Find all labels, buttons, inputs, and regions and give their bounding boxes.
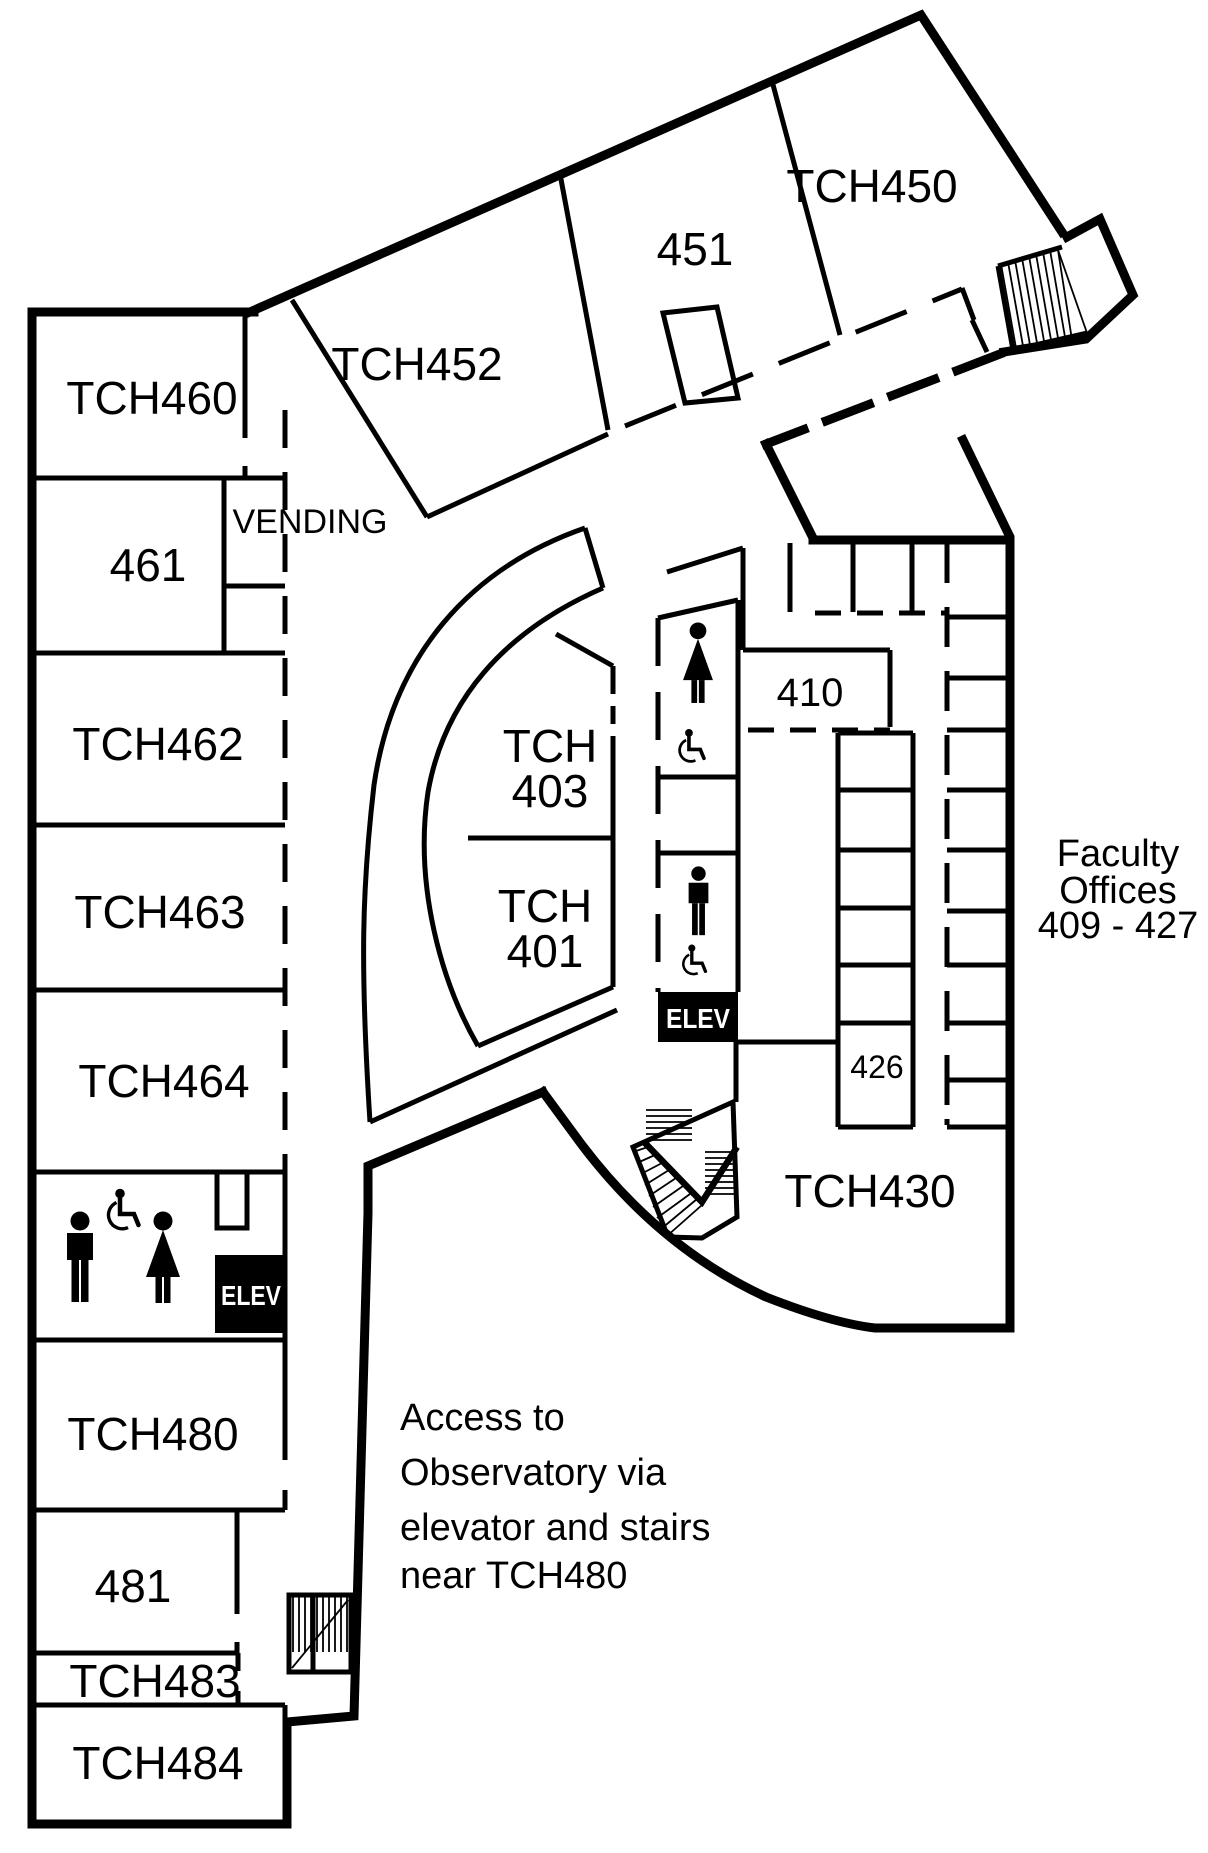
room-label-tch403-line2: 403 [512,765,589,817]
tch401-bottom-wall [478,987,613,1046]
accessible-icon [683,945,705,975]
women-restroom-icon [146,1212,180,1304]
room-label-tch460: TCH460 [66,372,237,424]
stairs-hatching-top [1001,250,1087,348]
room-label-tch463: TCH463 [74,886,245,938]
lower-corridor-wall [370,1010,617,1122]
room-label-tch401-line2: 401 [507,925,584,977]
room-label-451: 451 [657,223,734,275]
room-label-410: 410 [777,671,844,715]
elevator-lobby-walls [736,1042,838,1102]
faculty-offices-line3: 409 - 427 [1038,905,1199,947]
elevator-label: ELEV [666,1003,730,1034]
stair-lobby-walls [962,288,987,352]
tch452-end-wall [292,300,427,517]
room-label-tch450: TCH450 [786,160,957,212]
restroom-duct-notch [217,1172,247,1228]
room-label-tch464: TCH464 [78,1055,249,1107]
room-label-tch430: TCH430 [784,1165,955,1217]
faculty-offices-line1: Faculty [1057,833,1179,875]
observatory-note-line2: Observatory via [400,1452,667,1494]
center-women-restroom-icons [680,622,713,761]
bottom-left-stairs [289,1595,351,1672]
room-label-tch484: TCH484 [72,1737,243,1789]
top-right-stairs [998,247,1087,350]
top-corridor-wall-solid [427,434,608,517]
vending-label: VENDING [233,503,388,541]
center-men-restroom-icons [683,866,708,974]
tch403-top-wall [556,634,613,666]
room-label-tch452: TCH452 [331,338,502,390]
elevator-label: ELEV [221,1280,281,1311]
left-elevator: ELEV [215,1255,287,1333]
observatory-note-line4: near TCH480 [400,1555,627,1597]
restroom-column-top-wall [658,600,738,618]
left-restroom-icons [67,1189,180,1303]
exterior-notch-dashed-wall [766,354,1000,444]
accessible-icon [108,1189,138,1229]
top-stair-enclosure-outer-wall [1004,219,1133,352]
observatory-note-line3: elevator and stairs [400,1507,711,1549]
room451-alcove [663,307,738,403]
restroom-column-dividers [658,777,738,853]
arc-cap-wall [585,528,603,588]
wall-452-451 [560,174,608,430]
room-label-426: 426 [850,1049,903,1085]
room-label-tch483: TCH483 [69,1655,240,1707]
faculty-offices-note: Faculty Offices 409 - 427 [1038,833,1199,947]
men-restroom-icon [689,866,709,935]
top-row-office-dividers [790,543,912,612]
inner-arc-wall [424,588,603,1046]
observatory-note-line1: Access to [400,1397,565,1439]
floor-plan-canvas: ELEV ELEV TCH460 461 TCH462 TCH463 TCH46… [0,0,1208,1853]
center-elevator: ELEV [658,992,738,1042]
room-label-tch462: TCH462 [72,718,243,770]
top-wing-interior-walls [292,81,987,517]
room-label-tch480: TCH480 [67,1408,238,1460]
stairs-hatching-bottom [292,1597,348,1668]
room-label-461: 461 [110,539,187,591]
men-restroom-icon [67,1212,93,1303]
right-column-office-dividers [947,617,1010,1127]
floor-plan-page: ELEV ELEV TCH460 461 TCH462 TCH463 TCH46… [0,0,1208,1853]
women-restroom-icon [683,622,713,703]
curved-hall-walls [364,528,617,1122]
room-label-481: 481 [95,1560,172,1612]
accessible-icon [680,729,704,761]
observatory-access-note: Access to Observatory via elevator and s… [400,1397,711,1597]
